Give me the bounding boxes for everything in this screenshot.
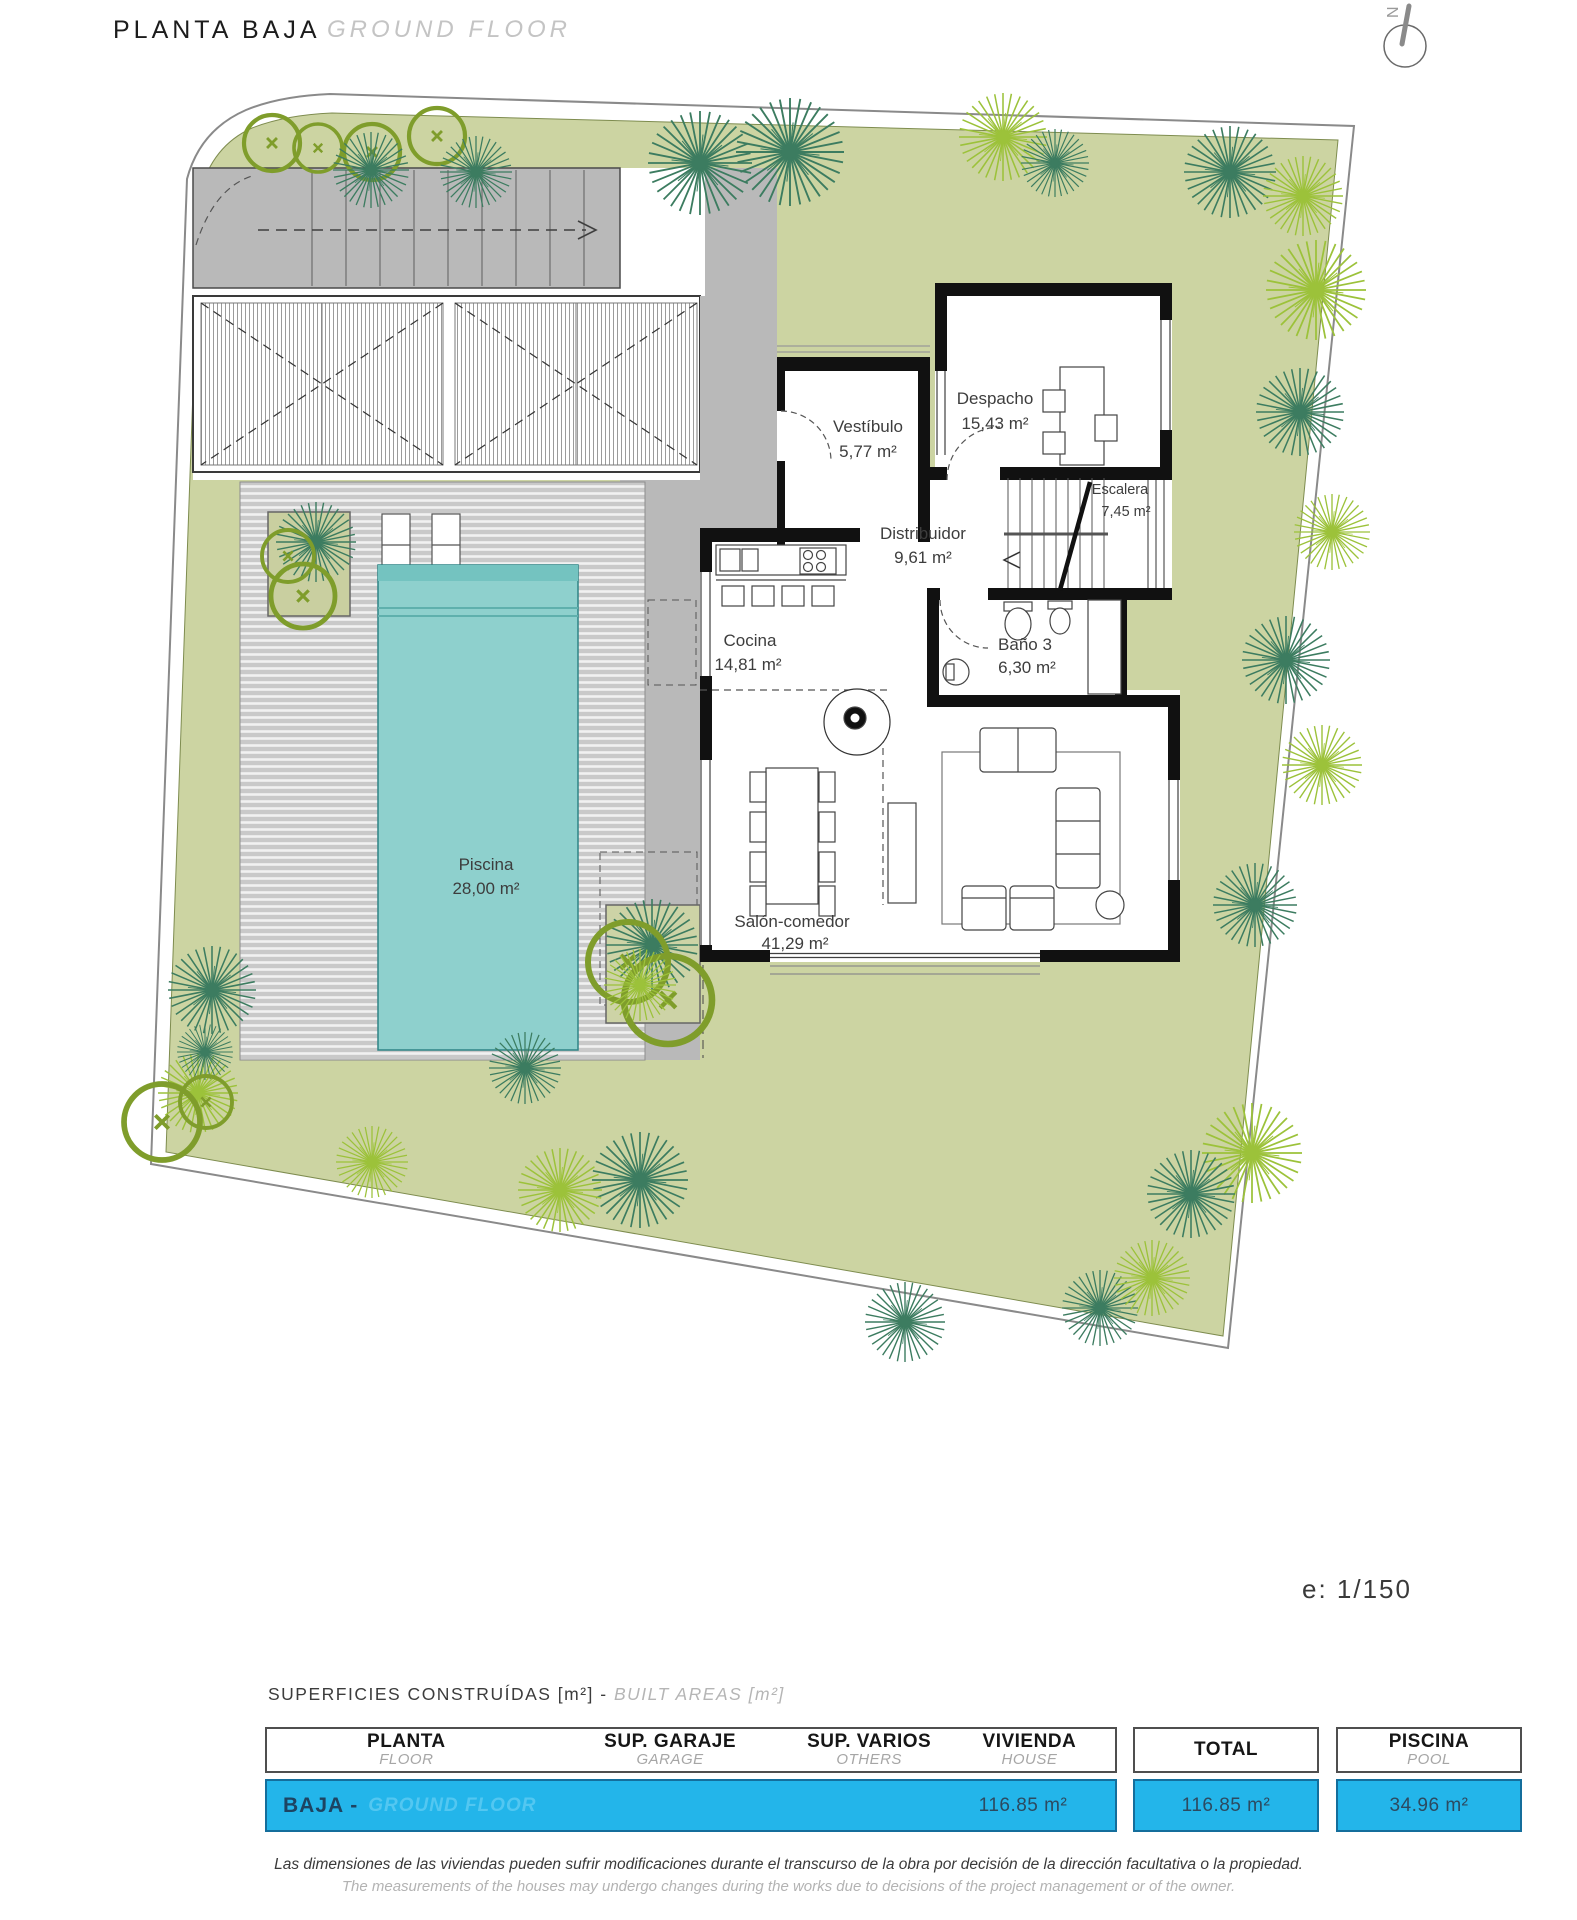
label-bano3: Baño 3 — [998, 635, 1052, 654]
label-vestibulo: Vestíbulo — [833, 417, 903, 436]
floor-plan-page: { "header": {"title": "PLANTA BAJA", "su… — [0, 0, 1577, 1920]
label-distribuidor-area: 9,61 m² — [894, 548, 952, 567]
label-cocina: Cocina — [724, 631, 777, 650]
compass-north-label: N — [1385, 6, 1402, 18]
column-label: VIVIENDA — [983, 1732, 1077, 1752]
label-escalera-area: 7,45 m² — [1101, 504, 1150, 520]
garage-doors — [193, 296, 700, 472]
areas-section-title-en: BUILT AREAS [m²] — [614, 1684, 785, 1704]
column-label: TOTAL — [1194, 1740, 1258, 1760]
column-vivienda: VIVIENDA HOUSE — [944, 1732, 1115, 1768]
row-floor-label-en: GROUND FLOOR — [358, 1795, 536, 1817]
areas-section-title: SUPERFICIES CONSTRUÍDAS [m²] - BUILT ARE… — [268, 1684, 785, 1705]
scale-label: e: 1/150 — [1302, 1574, 1412, 1604]
label-vestibulo-area: 5,77 m² — [839, 442, 897, 461]
areas-table-header: PLANTA FLOOR SUP. GARAJE GARAGE SUP. VAR… — [265, 1727, 1117, 1773]
table-row-total-cell: 116.85 m² — [1133, 1779, 1319, 1832]
column-varios: SUP. VARIOS OTHERS — [795, 1732, 944, 1768]
column-sublabel: HOUSE — [1001, 1752, 1057, 1768]
column-sublabel: FLOOR — [379, 1752, 433, 1768]
column-total: TOTAL — [1133, 1727, 1319, 1773]
label-despacho: Despacho — [957, 389, 1034, 408]
label-salon: Salón-comedor — [734, 912, 850, 931]
garage-area — [193, 168, 777, 528]
label-distribuidor: Distribuidor — [880, 524, 966, 543]
label-cocina-area: 14,81 m² — [714, 655, 781, 674]
column-label: SUP. VARIOS — [807, 1732, 931, 1752]
table-row-baja: BAJA - GROUND FLOOR 116.85 m² — [265, 1779, 1117, 1832]
column-label: PLANTA — [367, 1732, 446, 1752]
column-garaje: SUP. GARAJE GARAGE — [546, 1732, 795, 1768]
pool — [378, 565, 578, 1050]
row-total-value: 116.85 m² — [1182, 1795, 1271, 1817]
column-piscina: PISCINA POOL — [1336, 1727, 1522, 1773]
column-sublabel: GARAGE — [637, 1752, 704, 1768]
row-pool-value: 34.96 m² — [1390, 1795, 1469, 1817]
column-label: PISCINA — [1389, 1732, 1470, 1752]
row-floor-label: BAJA - — [267, 1794, 358, 1818]
areas-section-title-es: SUPERFICIES CONSTRUÍDAS [m²] - — [268, 1684, 614, 1704]
label-escalera: Escalera — [1092, 482, 1149, 498]
label-despacho-area: 15,43 m² — [961, 414, 1028, 433]
compass-icon: N — [1384, 6, 1426, 67]
label-piscina: Piscina — [459, 855, 514, 874]
table-row-pool-cell: 34.96 m² — [1336, 1779, 1522, 1832]
disclaimer-en: The measurements of the houses may under… — [0, 1878, 1577, 1895]
disclaimer-es: Las dimensiones de las viviendas pueden … — [0, 1856, 1577, 1874]
label-bano3-area: 6,30 m² — [998, 658, 1056, 677]
row-house-value: 116.85 m² — [927, 1795, 1119, 1817]
column-planta: PLANTA FLOOR — [267, 1732, 546, 1768]
label-piscina-area: 28,00 m² — [452, 879, 519, 898]
site-plan: Vestíbulo 5,77 m² Despacho 15,43 m² Esca… — [0, 0, 1577, 1920]
column-sublabel: POOL — [1407, 1752, 1451, 1768]
label-salon-area: 41,29 m² — [761, 934, 828, 953]
column-label: SUP. GARAJE — [604, 1732, 736, 1752]
column-sublabel: OTHERS — [836, 1752, 902, 1768]
access-stairs — [193, 168, 620, 288]
